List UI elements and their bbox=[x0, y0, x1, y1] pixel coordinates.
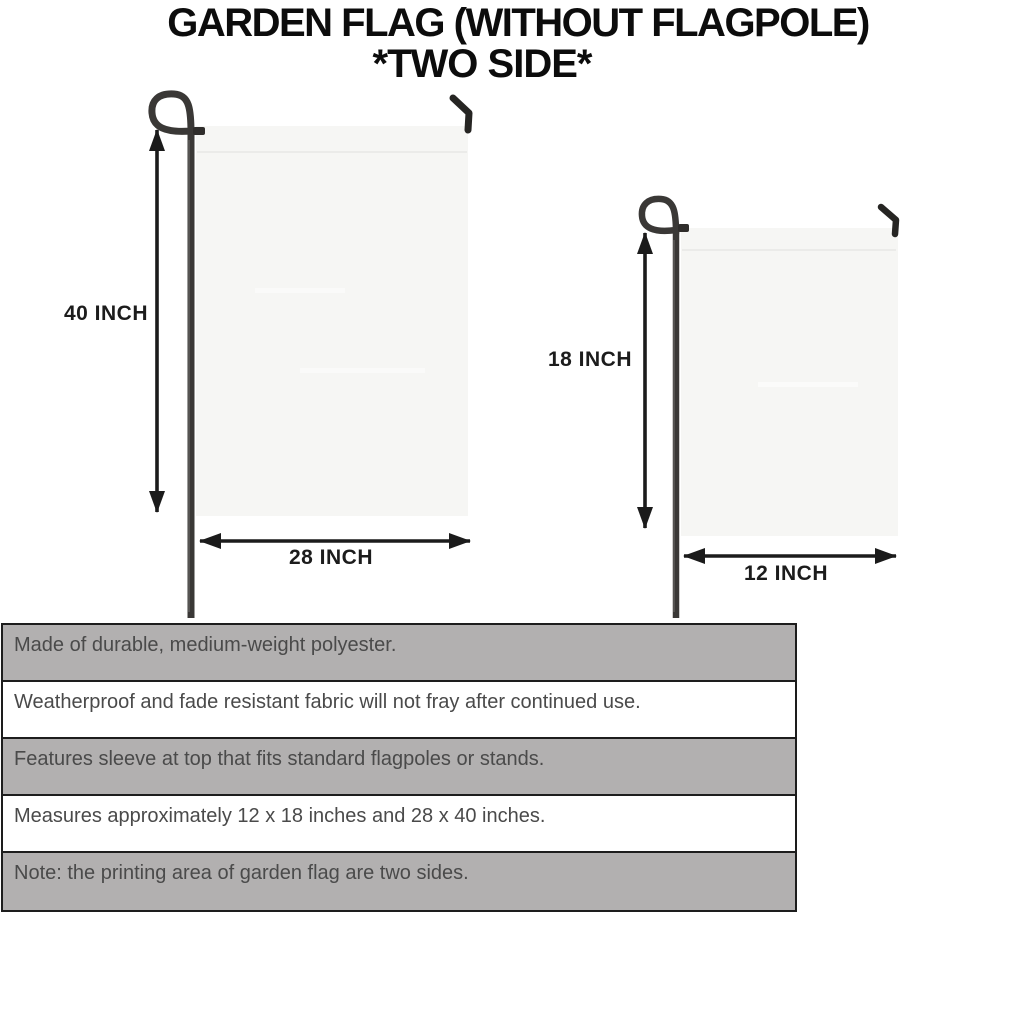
features-table: Made of durable, medium-weight polyester… bbox=[1, 623, 797, 912]
feature-row: Note: the printing area of garden flag a… bbox=[3, 853, 795, 910]
large-flag-panel bbox=[196, 126, 468, 516]
small-flag-height-label: 18 INCH bbox=[522, 348, 632, 372]
large-flag-fabric-highlight bbox=[300, 368, 425, 373]
garden-flag-infographic: { "title": { "line1": "GARDEN FLAG (WITH… bbox=[0, 0, 1024, 1024]
large-flag-hook-tip-icon bbox=[453, 98, 469, 130]
large-flag-diagram bbox=[152, 94, 470, 618]
flag-diagram-canvas bbox=[0, 0, 1024, 630]
large-flag-height-label: 40 INCH bbox=[38, 302, 148, 326]
small-flagpole-clip-icon bbox=[678, 224, 689, 232]
feature-row: Made of durable, medium-weight polyester… bbox=[3, 625, 795, 682]
feature-text: Features sleeve at top that fits standar… bbox=[14, 748, 544, 770]
feature-row: Weatherproof and fade resistant fabric w… bbox=[3, 682, 795, 739]
feature-text: Measures approximately 12 x 18 inches an… bbox=[14, 805, 545, 827]
small-flagpole-loop-icon bbox=[642, 199, 676, 233]
large-flag-width-label: 28 INCH bbox=[249, 546, 413, 570]
feature-text: Weatherproof and fade resistant fabric w… bbox=[14, 691, 641, 713]
feature-text: Note: the printing area of garden flag a… bbox=[14, 862, 469, 884]
small-flag-width-label: 12 INCH bbox=[706, 562, 866, 586]
small-flag-diagram bbox=[642, 199, 898, 618]
feature-row: Measures approximately 12 x 18 inches an… bbox=[3, 796, 795, 853]
large-flag-fabric-highlight bbox=[255, 288, 345, 293]
feature-row: Features sleeve at top that fits standar… bbox=[3, 739, 795, 796]
small-flag-fabric-highlight bbox=[758, 382, 858, 387]
large-flagpole-clip-icon bbox=[193, 127, 205, 135]
large-flagpole-loop-icon bbox=[152, 94, 191, 133]
feature-text: Made of durable, medium-weight polyester… bbox=[14, 634, 396, 656]
